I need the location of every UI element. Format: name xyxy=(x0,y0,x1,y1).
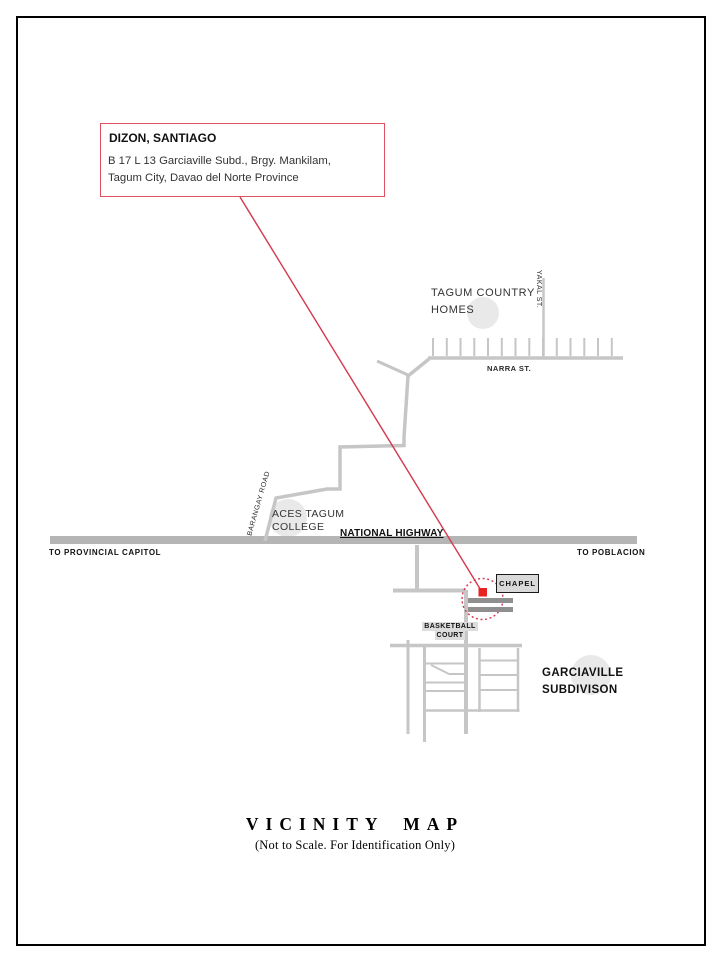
map-subtitle: (Not to Scale. For Identification Only) xyxy=(0,838,710,853)
label-to-poblacion: TO POBLACION xyxy=(577,548,645,557)
label-chapel: CHAPEL xyxy=(499,579,536,588)
map-title: VICINITY MAP xyxy=(0,814,710,835)
label-national-highway: NATIONAL HIGHWAY xyxy=(340,528,444,539)
label-court: COURT xyxy=(435,631,466,640)
road-spur xyxy=(377,361,408,375)
owner-name: DIZON, SANTIAGO xyxy=(109,131,216,145)
subject-lot-bar-2 xyxy=(468,607,513,612)
label-garciaville-1: GARCIAVILLE xyxy=(542,667,624,679)
label-tagum-country-homes-1: TAGUM COUNTRY xyxy=(431,287,535,299)
owner-info-box: DIZON, SANTIAGO B 17 L 13 Garciaville Su… xyxy=(100,123,385,197)
owner-address: B 17 L 13 Garciaville Subd., Brgy. Manki… xyxy=(108,153,331,186)
label-basketball: BASKETBALL xyxy=(422,622,477,631)
label-yakal-st: YAKAL ST. xyxy=(535,270,542,308)
grid-left-block-lines xyxy=(426,664,464,692)
address-line-1: B 17 L 13 Garciaville Subd., Brgy. Manki… xyxy=(108,153,331,170)
label-tagum-country-homes-2: HOMES xyxy=(431,304,474,316)
label-narra-st: NARRA ST. xyxy=(487,364,531,373)
label-aces-tagum-1: ACES TAGUM xyxy=(272,508,344,520)
grid-right-block-lines xyxy=(480,661,518,691)
address-line-2: Tagum City, Davao del Norte Province xyxy=(108,170,331,187)
label-to-provincial-capitol: TO PROVINCIAL CAPITOL xyxy=(49,548,161,557)
label-garciaville-2: SUBDIVISON xyxy=(542,684,618,696)
target-marker xyxy=(479,588,488,597)
map-title-block: VICINITY MAP (Not to Scale. For Identifi… xyxy=(0,814,710,853)
lot-ticks xyxy=(433,338,612,356)
vicinity-map-page: DIZON, SANTIAGO B 17 L 13 Garciaville Su… xyxy=(0,0,720,960)
basketball-court-label: BASKETBALL COURT xyxy=(420,622,480,640)
chapel-box: CHAPEL xyxy=(496,574,539,593)
label-aces-tagum-2: COLLEGE xyxy=(272,521,324,533)
subject-lot-bar-1 xyxy=(468,598,513,603)
